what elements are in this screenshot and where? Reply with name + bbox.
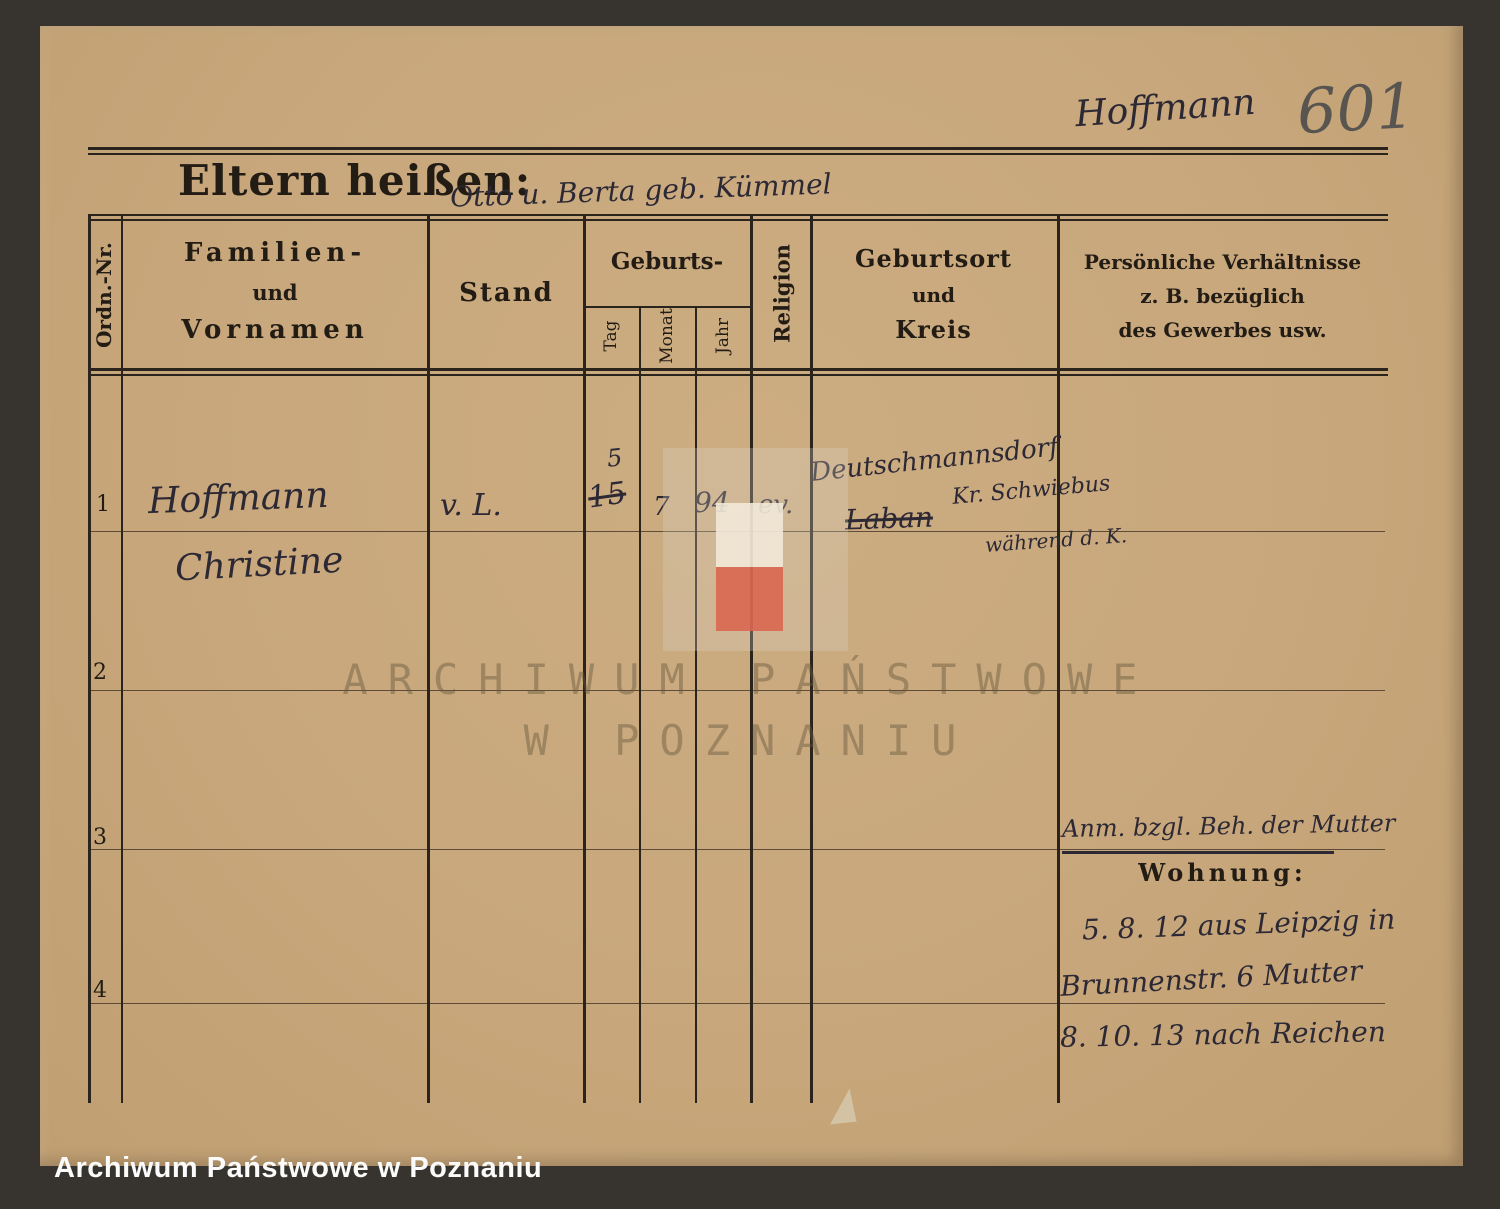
row-number-1: 1 [96, 492, 110, 517]
top-rule-upper [88, 147, 1388, 150]
header-bottom-line-1 [88, 368, 1388, 371]
col-header-name-line1: Familien- [184, 238, 366, 268]
hw-row1-surname: Hoffmann [147, 475, 329, 522]
vline-tag [639, 306, 641, 1103]
watermark-text-line2: W POZNANIU [0, 716, 1500, 765]
hw-row1-tag-corrected: 5 [606, 443, 624, 472]
hw-wohnung-line2: Brunnenstr. 6 Mutter [1059, 954, 1363, 1003]
tear-mark [830, 1087, 860, 1128]
hw-wohnung-line1: 5. 8. 12 aus Leipzig in [1082, 903, 1396, 947]
hw-mutter-note: Anm. bzgl. Beh. der Mutter [1062, 809, 1396, 843]
col-header-geburtsort: Geburtsort und Kreis [810, 244, 1057, 344]
col-header-name-line3: Vornamen [181, 315, 369, 345]
hw-row1-firstname: Christine [174, 540, 344, 590]
archive-logo-red-square [716, 567, 783, 631]
col-header-tag: Tag [601, 291, 621, 381]
row-line-4 [88, 1003, 1385, 1004]
hw-row1-stand: v. L. [440, 488, 502, 523]
col-header-verhaeltnisse-line3: des Gewerbes usw. [1118, 318, 1326, 342]
top-rule-lower [88, 153, 1388, 155]
watermark-text-line1: ARCHIWUM PAŃSTWOWE [0, 655, 1500, 704]
handwritten-surname: Hoffmann [1074, 82, 1257, 135]
hw-wohnung-line3: 8. 10. 13 nach Reichen [1060, 1015, 1386, 1054]
col-header-geburts: Geburts- [583, 248, 751, 275]
col-header-name-line2: und [252, 280, 297, 305]
table-top-line-1 [88, 214, 1388, 216]
col-header-geburtsort-line1: Geburtsort [855, 244, 1012, 273]
wohnung-label: Wohnung: [1060, 858, 1385, 887]
archive-logo-white-square [716, 503, 783, 567]
col-header-verhaeltnisse-line2: z. B. bezüglich [1140, 284, 1305, 308]
col-header-geburtsort-line3: Kreis [895, 315, 971, 344]
handwritten-page-number: 601 [1295, 69, 1417, 148]
col-header-verhaeltnisse-line1: Persönliche Verhältnisse [1084, 250, 1361, 274]
col-header-monat: Monat [657, 291, 677, 381]
col-header-name: Familien- und Vornamen [123, 238, 427, 345]
vline-monat [695, 306, 697, 1103]
col-header-religion: Religion [770, 234, 795, 354]
footer-archive-label: Archiwum Państwowe w Poznaniu [54, 1152, 542, 1185]
hw-row1-kreis: Kr. Schwiebus [951, 471, 1111, 510]
row-number-4: 4 [93, 978, 107, 1003]
hw-row1-tag-struck: 15 [586, 476, 629, 516]
row-number-3: 3 [93, 825, 107, 850]
col-header-ordnr: Ordn.-Nr. [92, 220, 116, 370]
hw-note-underline [1062, 851, 1334, 854]
col-header-verhaeltnisse: Persönliche Verhältnisse z. B. bezüglich… [1060, 250, 1385, 342]
row-line-3 [88, 849, 1385, 850]
header-bottom-line-2 [88, 374, 1388, 376]
hw-row1-geburtsort-struck: Laban [844, 500, 933, 536]
col-header-geburtsort-line2: und [912, 283, 955, 307]
table-top-line-2 [88, 219, 1388, 221]
col-header-jahr: Jahr [713, 291, 733, 381]
hw-row1-geburtsort-note: während d. K. [984, 523, 1128, 557]
col-header-stand: Stand [430, 278, 583, 308]
